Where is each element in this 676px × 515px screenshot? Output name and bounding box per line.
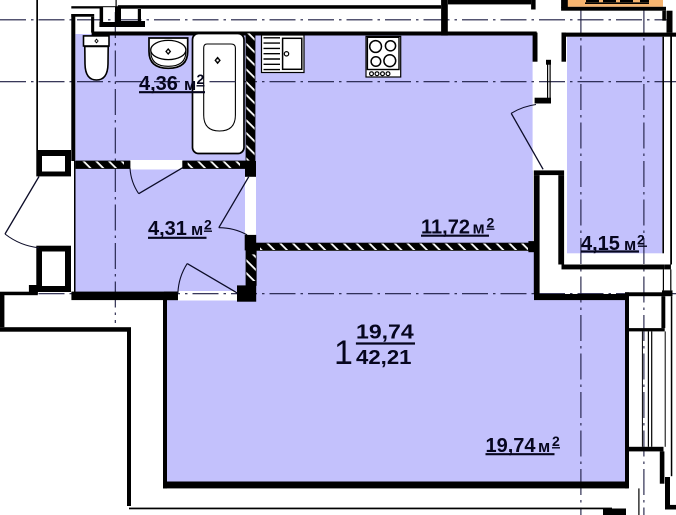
- svg-text:2: 2: [487, 215, 495, 231]
- svg-text:2: 2: [197, 71, 205, 87]
- svg-text:м: м: [191, 221, 203, 239]
- svg-text:1: 1: [334, 334, 353, 372]
- svg-text:19,74: 19,74: [356, 321, 414, 344]
- svg-text:2: 2: [637, 232, 645, 248]
- svg-text:42,21: 42,21: [356, 346, 412, 369]
- svg-text:2: 2: [204, 217, 212, 233]
- svg-text:2: 2: [552, 433, 560, 449]
